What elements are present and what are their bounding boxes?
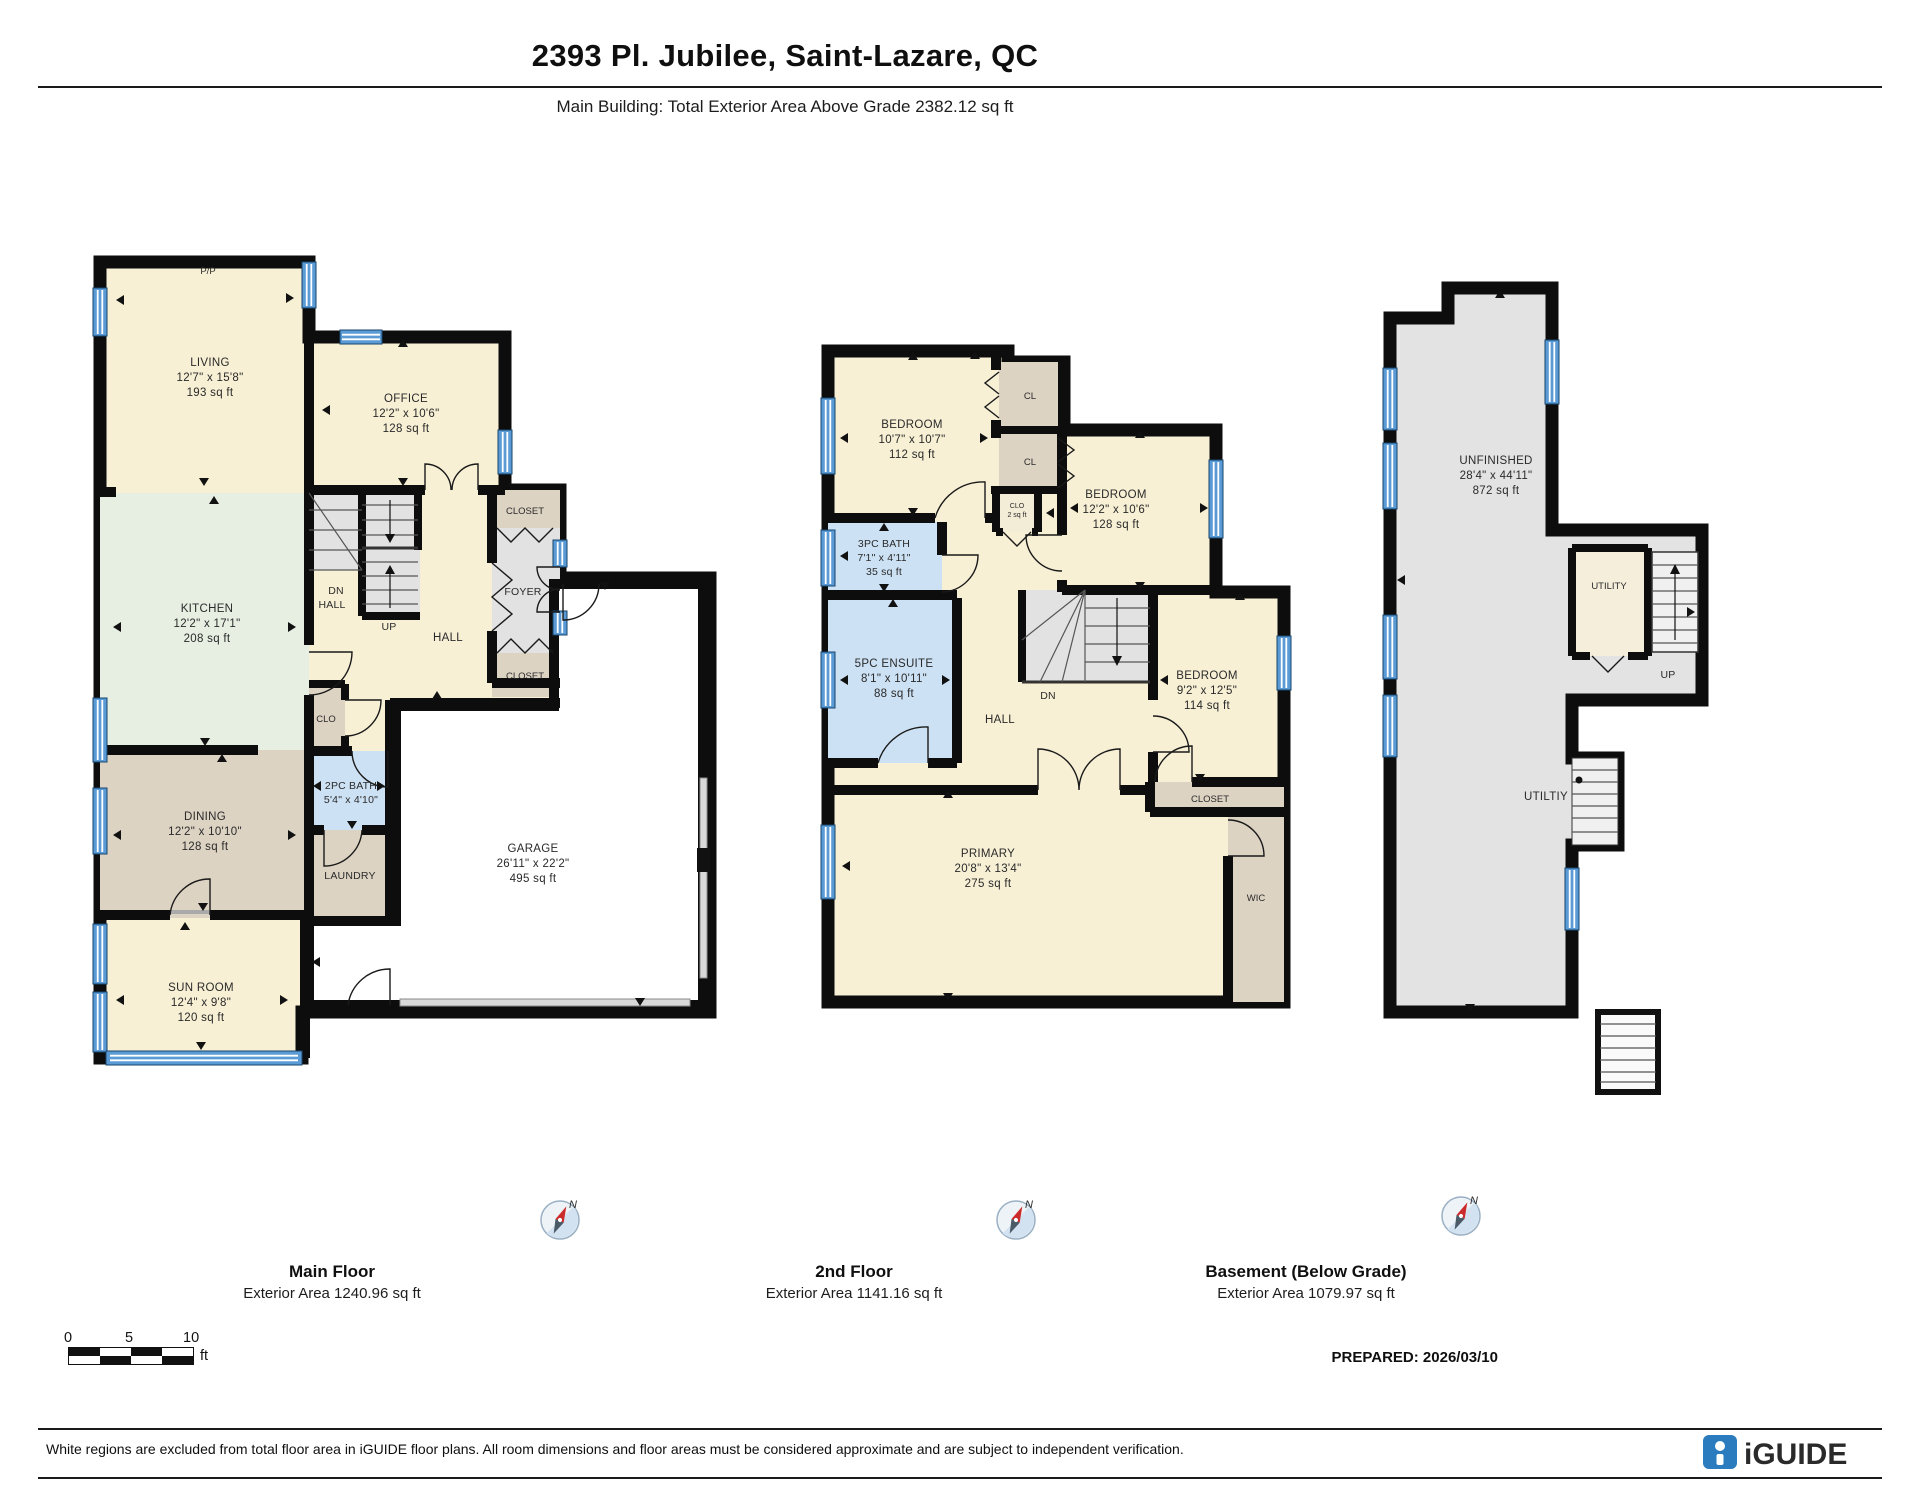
garage-area: 495 sq ft [510, 873, 557, 885]
kitchen-area: 208 sq ft [184, 633, 231, 645]
office-area: 128 sq ft [383, 423, 430, 435]
wic-label: WIC [1247, 893, 1266, 904]
bedroom2-dims: 12'2" x 10'6" [1083, 504, 1150, 516]
living-area: 193 sq ft [187, 387, 234, 399]
bedroom1-name: BEDROOM [881, 419, 943, 431]
unfinished-name: UNFINISHED [1459, 455, 1532, 467]
scale-unit: ft [200, 1348, 208, 1364]
ensuite-area: 88 sq ft [874, 688, 915, 700]
bedroom1-dims: 10'7" x 10'7" [879, 434, 946, 446]
basement-caption: Basement (Below Grade) Exterior Area 107… [1126, 1262, 1486, 1302]
dining-area: 128 sq ft [182, 841, 229, 853]
office-name: OFFICE [384, 393, 428, 405]
second-floor-caption: 2nd Floor Exterior Area 1141.16 sq ft [674, 1262, 1034, 1302]
main-floor-area: Exterior Area 1240.96 sq ft [152, 1285, 512, 1302]
clo-small-area: 2 sq ft [1007, 512, 1026, 519]
sunroom-area: 120 sq ft [178, 1012, 225, 1024]
stair-dn-label: DN [328, 585, 344, 597]
scale-tick-10: 10 [183, 1330, 199, 1346]
main-floor-caption: Main Floor Exterior Area 1240.96 sq ft [152, 1262, 512, 1302]
scale-tick-5: 5 [125, 1330, 133, 1346]
scale-bar: 0 5 10 ft [64, 1330, 264, 1370]
cl1-label: CL [1024, 391, 1036, 402]
living-name: LIVING [190, 357, 230, 369]
unfinished-dims: 28'4" x 44'11" [1460, 470, 1533, 482]
prepared-date: PREPARED: 2026/03/10 [1100, 1349, 1498, 1366]
page-subtitle: Main Building: Total Exterior Area Above… [285, 97, 1285, 117]
garage-dims: 26'11" x 22'2" [497, 858, 570, 870]
sunroom-dims: 12'4" x 9'8" [171, 997, 231, 1009]
bath3-dims: 7'1" x 4'11" [857, 552, 910, 564]
living-dims: 12'7" x 15'8" [177, 372, 244, 384]
iguide-logo-graphic: iGUIDE [1702, 1431, 1882, 1473]
second-floor-title: 2nd Floor [674, 1262, 1034, 1282]
scale-bar-graphic [68, 1347, 194, 1365]
bath2-name: 2PC BATH [325, 780, 377, 792]
kitchen-dims: 12'2" x 17'1" [174, 618, 241, 630]
kitchen-name: KITCHEN [181, 603, 234, 615]
compass-main: N [536, 1196, 584, 1244]
up-label: UP [382, 621, 397, 633]
pp-label: P/P [200, 266, 215, 277]
laundry-label: LAUNDRY [324, 870, 375, 882]
footer-bottom-divider [38, 1477, 1882, 1479]
iguide-logo: iGUIDE [1702, 1431, 1882, 1473]
dining-name: DINING [184, 811, 226, 823]
garage-name: GARAGE [507, 843, 558, 855]
foyer-label: FOYER [504, 586, 541, 598]
second-floor-area: Exterior Area 1141.16 sq ft [674, 1285, 1034, 1302]
hall2-label: HALL [985, 714, 1015, 726]
footer-top-divider [38, 1428, 1882, 1430]
scale-tick-0: 0 [64, 1330, 72, 1346]
compass-n-label: N [569, 1199, 577, 1211]
compass-n-label: N [1025, 1199, 1033, 1211]
compass-n-label: N [1470, 1195, 1478, 1207]
primary-area: 275 sq ft [965, 878, 1012, 890]
closet-bottom-label: CLOSET [506, 671, 544, 682]
basement-title: Basement (Below Grade) [1126, 1262, 1486, 1282]
unfinished-area: 872 sq ft [1473, 485, 1520, 497]
sunroom-name: SUN ROOM [168, 982, 234, 994]
bedroom2-area: 128 sq ft [1093, 519, 1140, 531]
utility-label: UTILITY [1591, 581, 1627, 592]
basement-plan: UNFINISHED 28'4" x 44'11" 872 sq ft UTIL… [1372, 222, 1717, 1107]
closet-top-label: CLOSET [506, 506, 544, 517]
bedroom1-area: 112 sq ft [889, 449, 935, 461]
clo-label: CLO [316, 714, 336, 725]
page-title: 2393 Pl. Jubilee, Saint-Lazare, QC [285, 38, 1285, 74]
bedroom3-dims: 9'2" x 12'5" [1177, 685, 1237, 697]
dining-dims: 12'2" x 10'10" [168, 826, 242, 838]
cl2-label: CL [1024, 457, 1036, 468]
compass-basement: N [1437, 1192, 1485, 1240]
hall-label: HALL [433, 632, 463, 644]
bath3-area: 35 sq ft [866, 566, 902, 578]
dn-label: DN [1040, 690, 1056, 702]
ensuite-name: 5PC ENSUITE [855, 658, 934, 670]
bedroom3-name: BEDROOM [1176, 670, 1238, 682]
second-floor-plan: BEDROOM 10'7" x 10'7" 112 sq ft CL CL CL… [812, 338, 1298, 1018]
stair-hall-label: HALL [318, 599, 345, 611]
utiltiy-label: UTILTIY [1524, 791, 1568, 803]
utility-marker-dot [1576, 777, 1583, 784]
compass-second: N [992, 1196, 1040, 1244]
main-floor-title: Main Floor [152, 1262, 512, 1282]
iguide-logo-text: iGUIDE [1744, 1438, 1847, 1471]
bath3-name: 3PC BATH [858, 538, 910, 550]
clo-small-name: CLO [1010, 503, 1025, 510]
primary-name: PRIMARY [961, 848, 1015, 860]
footer-disclaimer: White regions are excluded from total fl… [46, 1441, 1446, 1457]
utility-room [1572, 548, 1648, 656]
bedroom3-area: 114 sq ft [1184, 700, 1230, 712]
closet2-label: CLOSET [1191, 794, 1229, 805]
office-dims: 12'2" x 10'6" [373, 408, 440, 420]
bath2-dims: 5'4" x 4'10" [324, 794, 378, 806]
bedroom2-name: BEDROOM [1085, 489, 1147, 501]
basement-up-label: UP [1661, 669, 1676, 681]
main-floor-plan: P/P LIVING 12'7" x 15'8" 193 sq ft OFFIC… [85, 240, 735, 1085]
ensuite-dims: 8'1" x 10'11" [861, 673, 927, 685]
basement-area: Exterior Area 1079.97 sq ft [1126, 1285, 1486, 1302]
floorplan-page: 2393 Pl. Jubilee, Saint-Lazare, QC Main … [0, 0, 1920, 1485]
title-divider [38, 86, 1882, 88]
primary-dims: 20'8" x 13'4" [955, 863, 1022, 875]
